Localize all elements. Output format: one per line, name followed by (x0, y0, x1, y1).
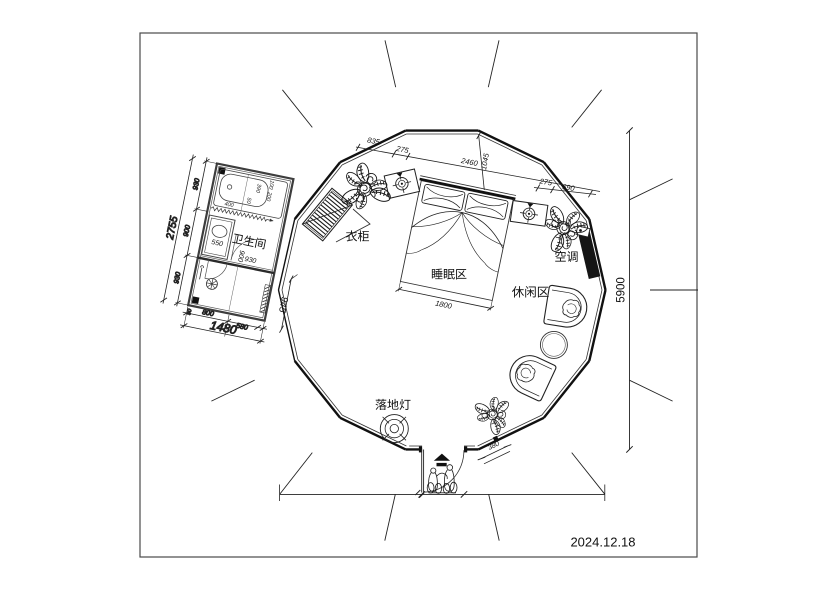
svg-text:2024.12.18: 2024.12.18 (570, 535, 635, 550)
svg-text:5900: 5900 (616, 277, 628, 303)
